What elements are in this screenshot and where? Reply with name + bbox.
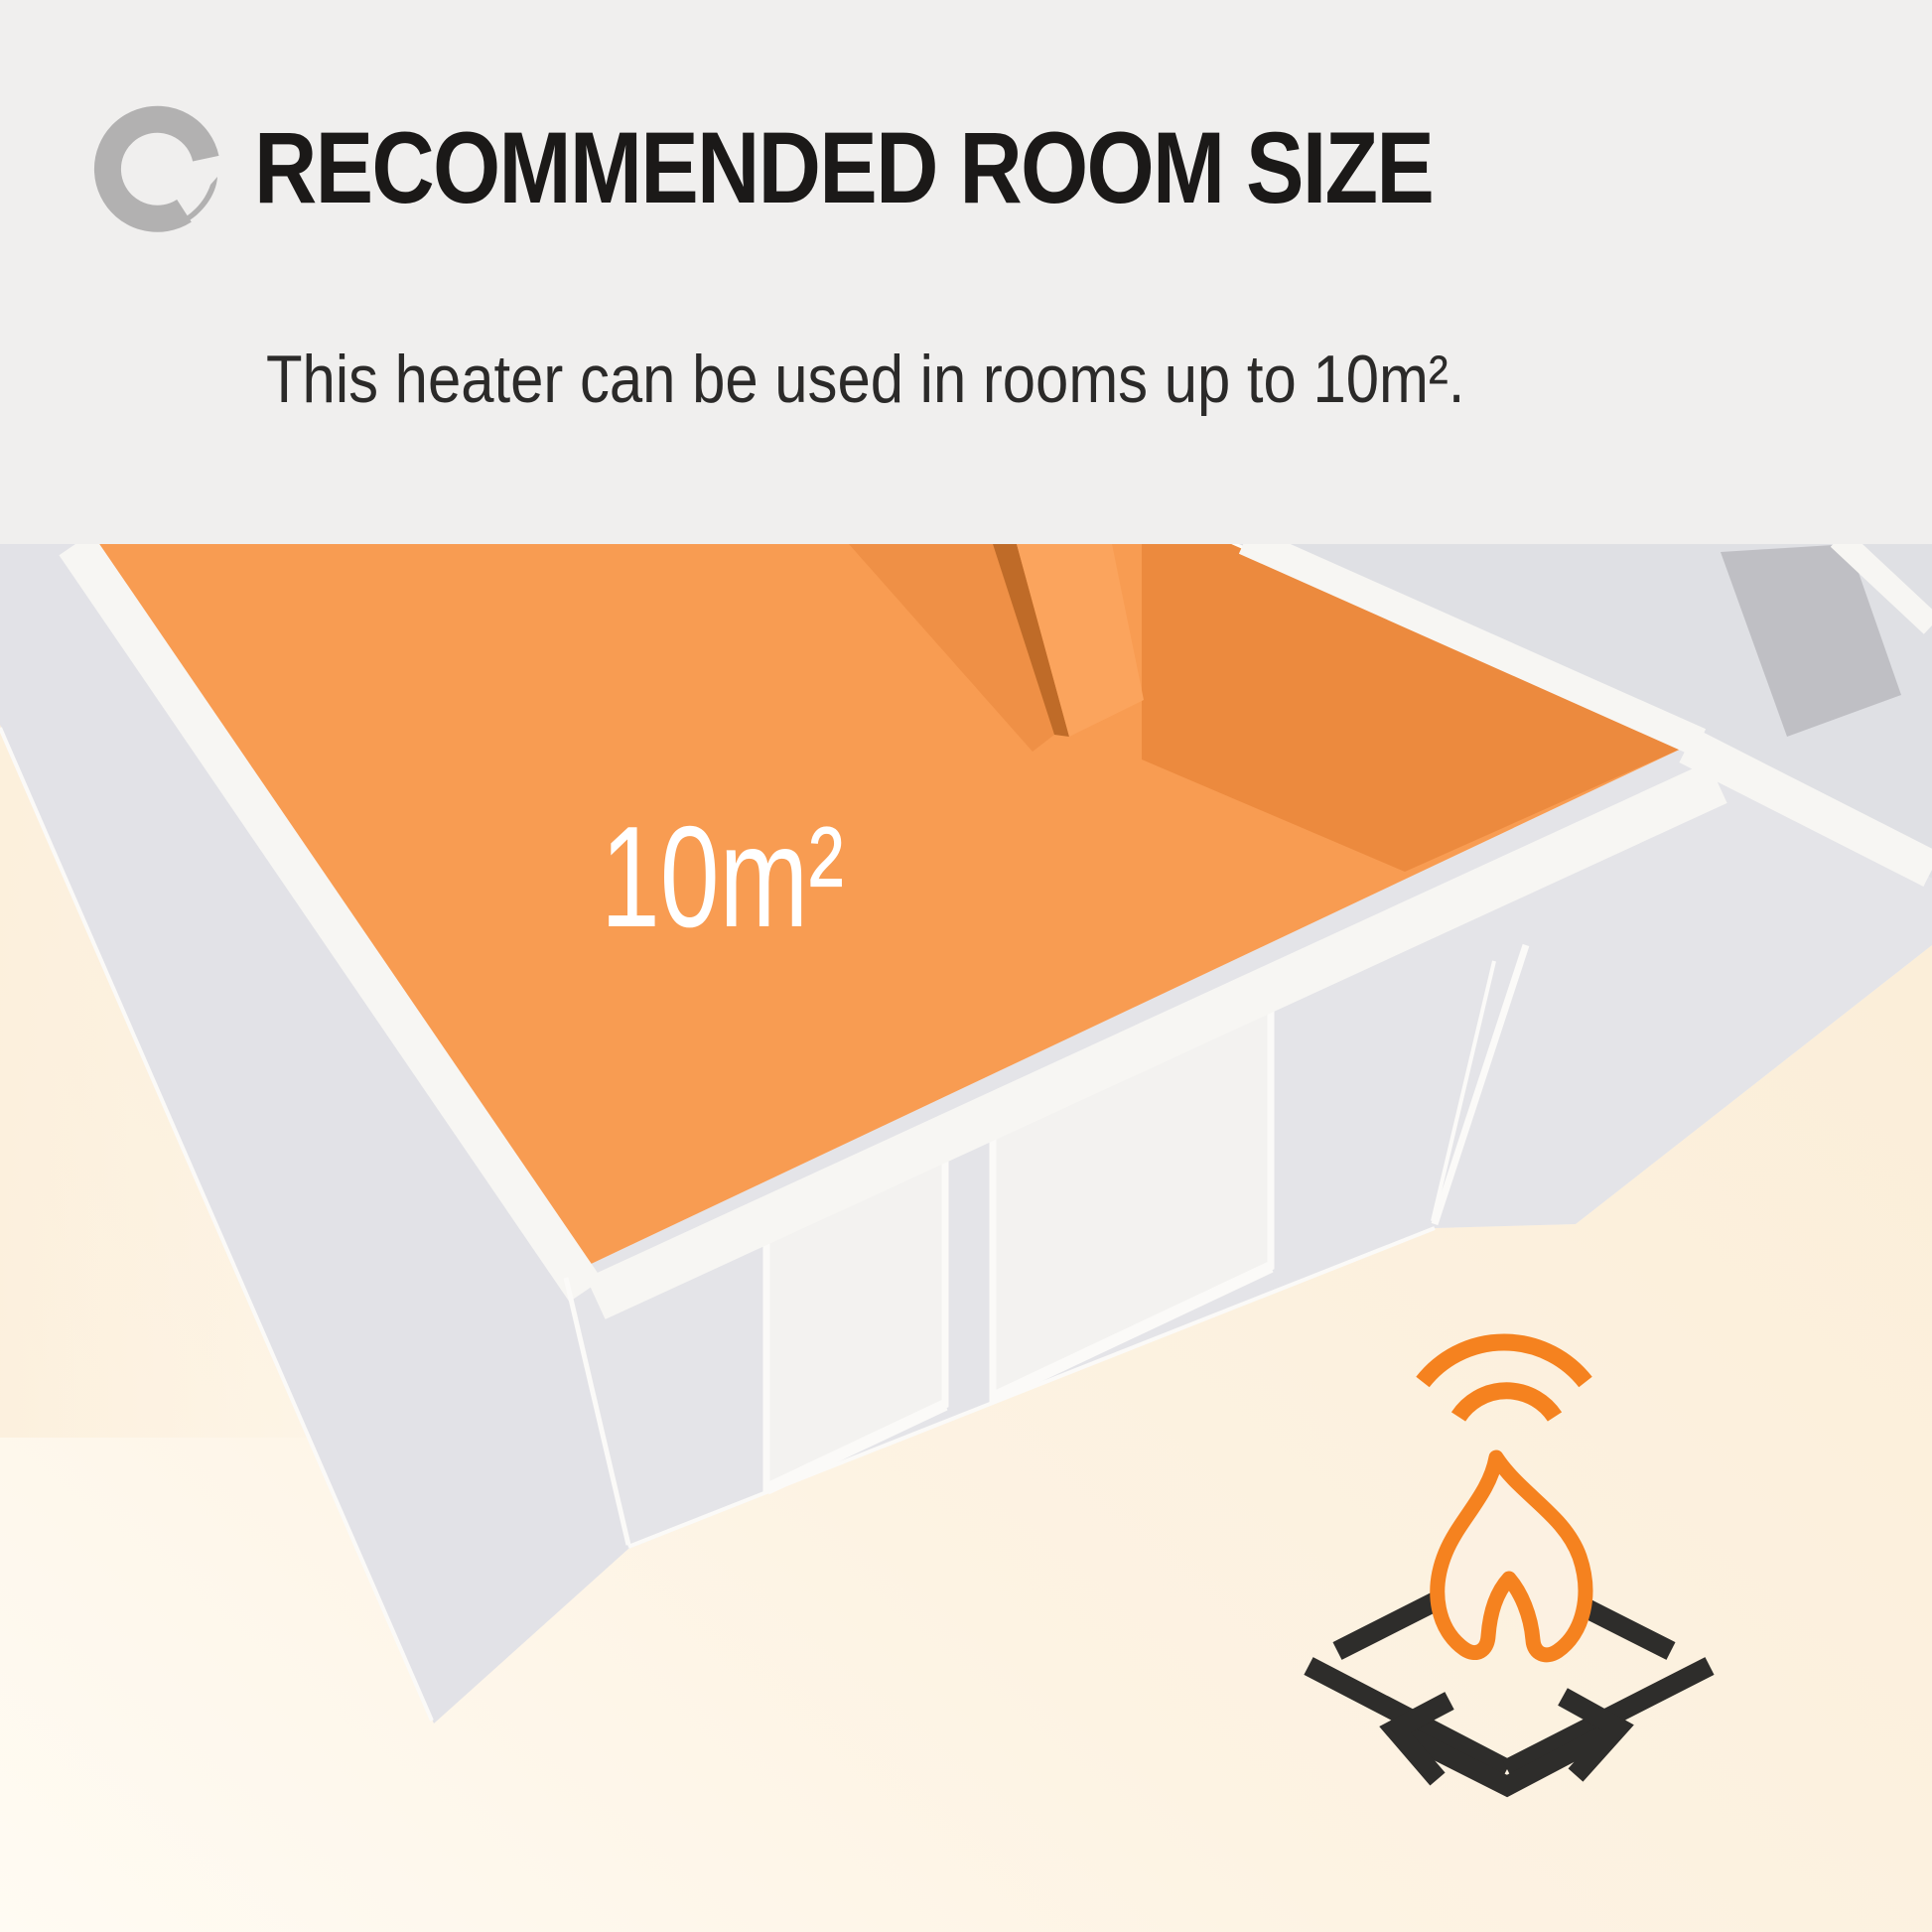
page-title: RECOMMENDED ROOM SIZE (254, 117, 1433, 218)
page-subtitle: This heater can be used in rooms up to 1… (266, 345, 1464, 413)
header-band: RECOMMENDED ROOM SIZE This heater can be… (0, 0, 1932, 544)
infographic-page: 10m² (0, 0, 1932, 1932)
brand-logo-icon (85, 95, 232, 244)
logo-ring (107, 119, 206, 218)
floor-area-label: 10m² (601, 796, 844, 957)
